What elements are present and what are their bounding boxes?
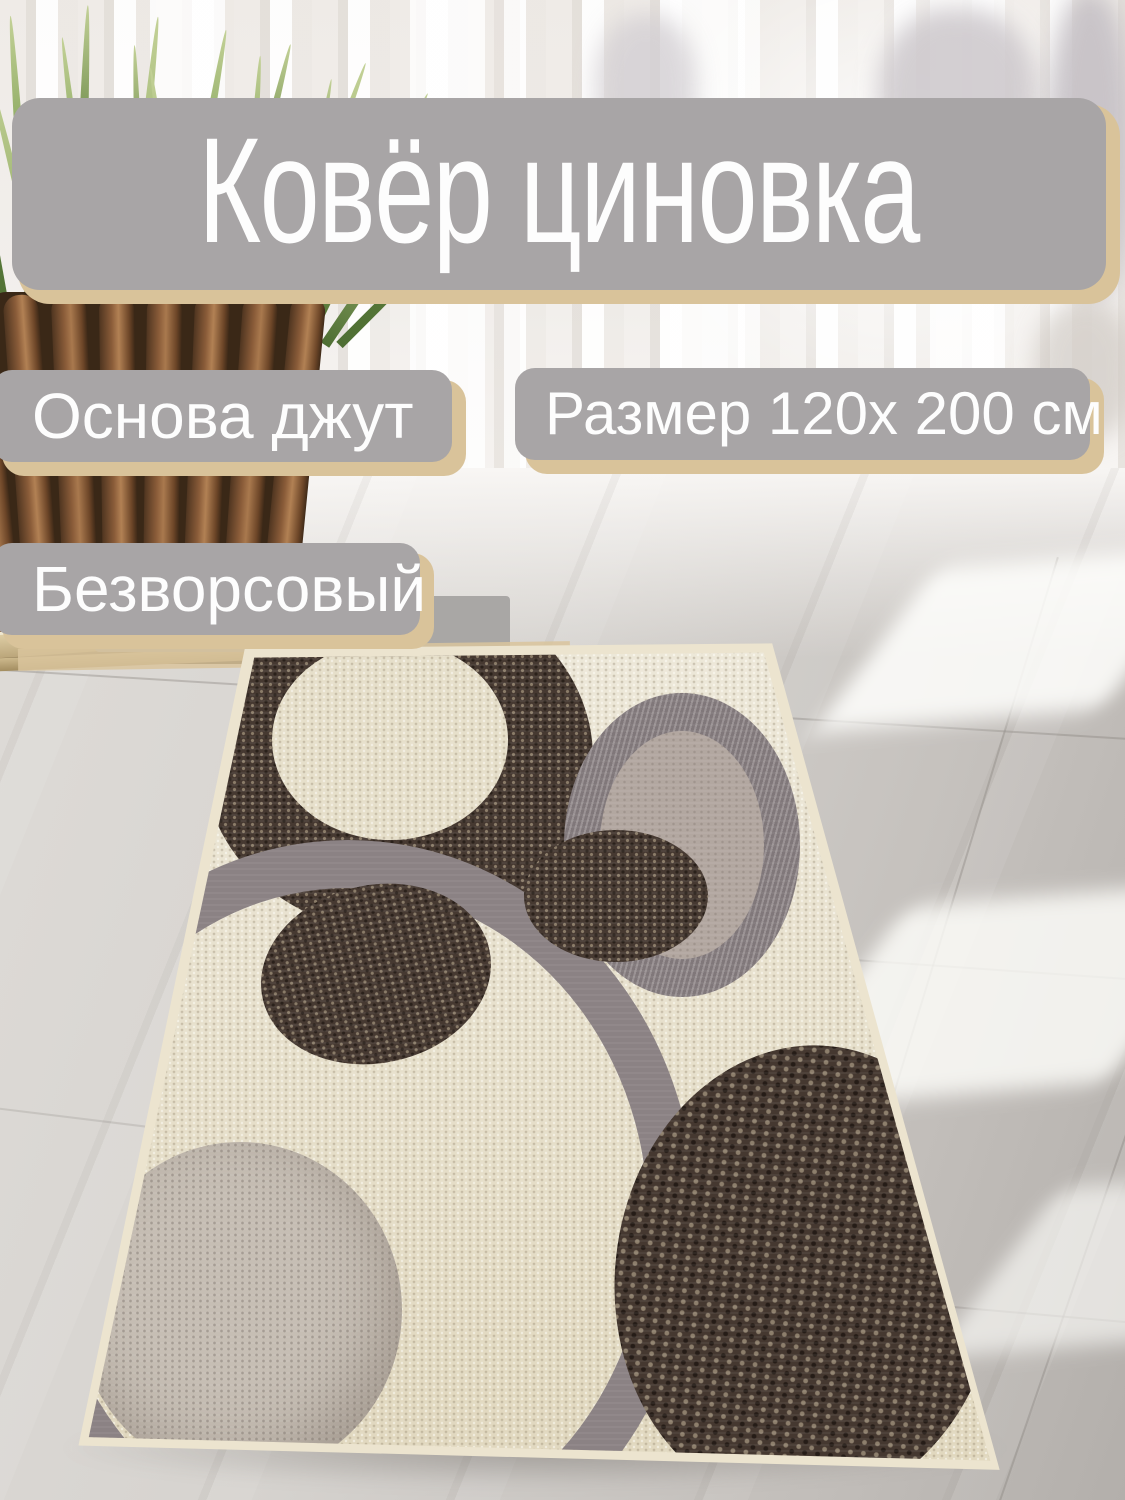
product-photo-scene: Ковёр циновка Основа джут Размер 120х 20…	[0, 0, 1125, 1500]
rug-dark-circle-center	[524, 830, 708, 962]
badge-size: Размер 120х 200 см	[515, 368, 1090, 460]
rug-dark-ring-inner	[272, 640, 508, 840]
title-banner: Ковёр циновка	[12, 98, 1106, 290]
badge-pile: Безворсовый	[0, 543, 420, 635]
title-text: Ковёр циновка	[199, 115, 920, 273]
badge-jute: Основа джут	[0, 370, 452, 462]
